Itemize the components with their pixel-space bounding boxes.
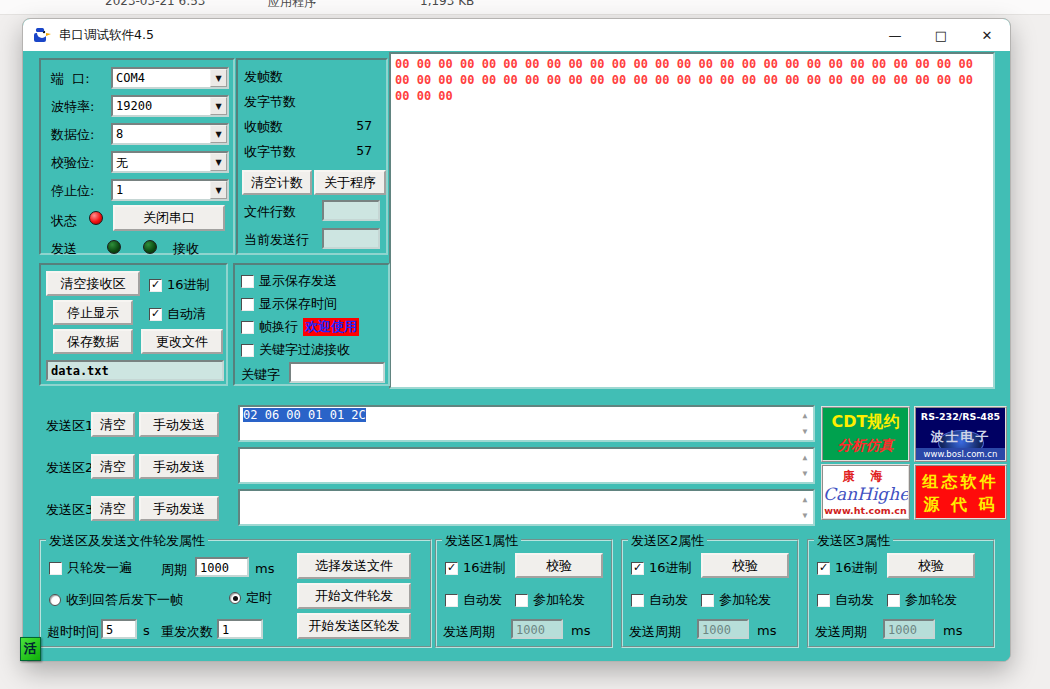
area2-autosend-label: 自动发 — [649, 591, 688, 609]
window-title: 串口调试软件4.5 — [59, 27, 154, 44]
app-window: 串口调试软件4.5 — □ ✕ 端 口: COM4▼ 波特率: 19200▼ 数… — [22, 18, 1011, 662]
area3-verify-button[interactable]: 校验 — [887, 553, 975, 578]
period-unit: ms — [255, 561, 274, 576]
area2-hex-checkbox[interactable]: 16进制 — [631, 559, 692, 577]
send-area2-props-title: 发送区2属性 — [628, 532, 707, 550]
timer-mode-radio[interactable]: 定时 — [229, 589, 272, 607]
port-settings-panel: 端 口: COM4▼ 波特率: 19200▼ 数据位: 8▼ 校验位: 无▼ 停… — [39, 58, 235, 255]
databits-label: 数据位: — [51, 126, 94, 144]
rx-frames-value: 57 — [356, 118, 372, 133]
send-area2-manual-button[interactable]: 手动发送 — [139, 454, 219, 479]
area2-period-field: 1000 — [697, 619, 749, 639]
send-area3-props-title: 发送区3属性 — [814, 532, 893, 550]
rx-led-icon — [143, 240, 157, 254]
current-line-field[interactable] — [322, 228, 380, 249]
area1-autosend-checkbox[interactable]: 自动发 — [445, 591, 502, 609]
send-after-answer-radio[interactable]: 收到回答后发下一帧 — [49, 591, 183, 609]
stopbits-label: 停止位: — [51, 182, 94, 200]
checkbox-icon — [515, 594, 528, 607]
autoclear-checkbox[interactable]: 自动清 — [149, 305, 206, 323]
area3-period-field: 1000 — [883, 619, 935, 639]
rx-line: 00 00 00 00 00 00 00 00 00 00 00 00 00 0… — [395, 56, 989, 72]
parity-value: 无 — [113, 153, 210, 171]
send-area1-field[interactable]: 02 06 00 01 01 2C▲▼ — [238, 405, 815, 442]
spinner-arrows-icon[interactable]: ▲▼ — [798, 408, 812, 439]
rotate-once-checkbox[interactable]: 只轮发一遍 — [49, 559, 132, 577]
current-line-label: 当前发送行 — [244, 231, 309, 249]
send-area2-props-group: 发送区2属性 16进制 校验 自动发 参加轮发 发送周期 1000 ms — [621, 539, 799, 648]
welcome-badge: 欢迎使用 — [303, 318, 359, 336]
send-area3-props-group: 发送区3属性 16进制 校验 自动发 参加轮发 发送周期 1000 ms — [807, 539, 995, 648]
retry-field[interactable]: 1 — [217, 619, 263, 639]
checkbox-icon — [241, 298, 254, 311]
send-area2-clear-button[interactable]: 清空 — [91, 454, 135, 479]
databits-select[interactable]: 8▼ — [111, 123, 229, 145]
area3-autosend-label: 自动发 — [835, 591, 874, 609]
send-area1-clear-button[interactable]: 清空 — [91, 412, 135, 437]
checkbox-icon — [817, 594, 830, 607]
timeout-label: 超时时间 — [47, 623, 99, 641]
area1-autosend-label: 自动发 — [463, 591, 502, 609]
canhigher-ad[interactable]: 康 海 CanHigher www.ht.com.cn — [821, 464, 910, 520]
background-explorer-row: 2023-03-21 6:53 应用程序 1,193 KB — [0, 0, 1050, 15]
chevron-down-icon[interactable]: ▼ — [210, 69, 227, 87]
save-data-button[interactable]: 保存数据 — [53, 329, 133, 354]
maximize-button[interactable]: □ — [918, 19, 964, 51]
area3-join-checkbox[interactable]: 参加轮发 — [887, 591, 957, 609]
chevron-down-icon[interactable]: ▼ — [210, 153, 227, 171]
cdt-ad-line2: 分析仿真 — [823, 437, 908, 455]
area1-hex-label: 16进制 — [463, 559, 506, 577]
send-area3-label: 发送区3 — [46, 501, 93, 519]
retry-label: 重发次数 — [161, 623, 213, 641]
autoclear-label: 自动清 — [167, 305, 206, 323]
tx-frames-label: 发帧数 — [244, 68, 283, 86]
about-button[interactable]: 关于程序 — [314, 170, 386, 195]
clear-count-button[interactable]: 清空计数 — [242, 170, 312, 195]
send-area2-field[interactable]: ▲▼ — [238, 447, 815, 484]
tx-label: 发送 — [51, 240, 77, 258]
title-bar[interactable]: 串口调试软件4.5 — □ ✕ — [23, 19, 1010, 51]
area1-period-field: 1000 — [511, 619, 563, 639]
area2-join-checkbox[interactable]: 参加轮发 — [701, 591, 771, 609]
bosi-ad-line2: 波士电子 — [916, 428, 1005, 446]
send-area3-manual-button[interactable]: 手动发送 — [139, 496, 219, 521]
keyword-filter-label: 关键字过滤接收 — [259, 341, 350, 359]
rotate-once-label: 只轮发一遍 — [67, 559, 132, 577]
chevron-down-icon[interactable]: ▼ — [210, 97, 227, 115]
scada-ad-line1: 组态软件 — [916, 472, 1005, 493]
area1-verify-button[interactable]: 校验 — [515, 553, 603, 578]
cdt-protocol-ad[interactable]: CDT规约 分析仿真 — [821, 406, 910, 462]
area1-period-unit: ms — [571, 623, 590, 638]
bosi-electronics-ad[interactable]: RS-232/RS-485 波士电子 www.bosl.com.cn — [914, 406, 1007, 462]
checkbox-icon — [149, 308, 162, 321]
databits-value: 8 — [113, 125, 210, 143]
show-saved-time-label: 显示保存时间 — [259, 295, 337, 313]
checkbox-icon — [241, 344, 254, 357]
status-label: 状态 — [51, 212, 77, 230]
send-area1-props-title: 发送区1属性 — [442, 532, 521, 550]
checkbox-icon — [817, 562, 830, 575]
checkbox-icon — [241, 321, 254, 334]
canhigher-ad-line2: CanHigher — [823, 484, 908, 504]
keyword-field[interactable] — [289, 362, 385, 383]
area1-hex-checkbox[interactable]: 16进制 — [445, 559, 506, 577]
checkbox-icon — [241, 275, 254, 288]
period-field[interactable]: 1000 — [195, 557, 249, 577]
save-filename-field[interactable]: data.txt — [46, 360, 224, 381]
area1-join-checkbox[interactable]: 参加轮发 — [515, 591, 585, 609]
canhigher-ad-url: www.ht.com.cn — [823, 505, 908, 516]
stopbits-value: 1 — [113, 181, 210, 199]
keyword-label: 关键字 — [241, 366, 280, 384]
tx-bytes-label: 发字节数 — [244, 93, 296, 111]
file-date: 2023-03-21 6:53 — [105, 0, 206, 8]
area3-hex-checkbox[interactable]: 16进制 — [817, 559, 878, 577]
app-duck-icon — [33, 27, 51, 43]
area2-period-label: 发送周期 — [629, 623, 681, 641]
stop-display-button[interactable]: 停止显示 — [53, 300, 133, 325]
checkbox-icon — [445, 562, 458, 575]
rotation-settings-group: 发送区及发送文件轮发属性 只轮发一遍 周期 1000 ms 选择发送文件 收到回… — [39, 539, 432, 648]
clear-receive-button[interactable]: 清空接收区 — [46, 271, 140, 296]
port-value: COM4 — [113, 69, 210, 87]
radio-icon — [49, 594, 61, 606]
hex-display-label: 16进制 — [167, 276, 210, 294]
rx-bytes-value: 57 — [356, 143, 372, 158]
client-area: 端 口: COM4▼ 波特率: 19200▼ 数据位: 8▼ 校验位: 无▼ 停… — [23, 51, 1010, 661]
checkbox-icon — [631, 562, 644, 575]
spinner-arrows-icon[interactable]: ▲▼ — [798, 450, 812, 481]
file-lines-label: 文件行数 — [244, 203, 296, 221]
scada-source-ad[interactable]: 组态软件 源 代 码 — [914, 464, 1007, 520]
change-file-button[interactable]: 更改文件 — [141, 329, 223, 354]
area2-period-unit: ms — [757, 623, 776, 638]
baud-select[interactable]: 19200▼ — [111, 95, 229, 117]
area1-join-label: 参加轮发 — [533, 591, 585, 609]
area2-hex-label: 16进制 — [649, 559, 692, 577]
minimize-button[interactable]: — — [872, 19, 918, 51]
file-size: 1,193 KB — [420, 0, 474, 8]
rx-label: 接收 — [173, 240, 199, 258]
selected-hex-text: 02 06 00 01 01 2C — [243, 408, 366, 422]
parity-label: 校验位: — [51, 154, 94, 172]
send-area3-field[interactable]: ▲▼ — [238, 489, 815, 526]
show-saved-time-checkbox[interactable]: 显示保存时间 — [241, 295, 337, 313]
counters-panel: 发帧数 发字节数 收帧数 57 收字节数 57 清空计数 关于程序 文件行数 当… — [236, 58, 388, 255]
rx-line: 00 00 00 — [395, 88, 989, 104]
checkbox-icon — [631, 594, 644, 607]
close-port-button[interactable]: 关闭串口 — [113, 205, 225, 231]
rx-bytes-label: 收字节数 — [244, 143, 296, 161]
rx-frames-label: 收帧数 — [244, 118, 283, 136]
rx-line: 00 00 00 00 00 00 00 00 00 00 00 00 00 0… — [395, 72, 989, 88]
hex-display-checkbox[interactable]: 16进制 — [149, 276, 210, 294]
frame-newline-label: 帧换行 — [259, 318, 298, 336]
area1-period-label: 发送周期 — [443, 623, 495, 641]
rotation-group-title: 发送区及发送文件轮发属性 — [46, 532, 208, 550]
bosi-ad-url: www.bosl.com.cn — [916, 448, 1005, 460]
chevron-down-icon[interactable]: ▼ — [210, 125, 227, 143]
timeout-field[interactable]: 5 — [101, 619, 137, 639]
ime-indicator[interactable]: 活 — [20, 637, 41, 661]
checkbox-icon — [701, 594, 714, 607]
start-area-rotation-button[interactable]: 开始发送区轮发 — [297, 613, 411, 639]
send-area3-clear-button[interactable]: 清空 — [91, 496, 135, 521]
baud-label: 波特率: — [51, 98, 94, 116]
area3-period-unit: ms — [943, 623, 962, 638]
select-send-file-button[interactable]: 选择发送文件 — [297, 553, 411, 579]
start-file-rotation-button[interactable]: 开始文件轮发 — [297, 583, 411, 609]
show-saved-tx-checkbox[interactable]: 显示保存发送 — [241, 272, 337, 290]
cdt-ad-line1: CDT规约 — [823, 412, 908, 433]
baud-value: 19200 — [113, 97, 210, 115]
parity-select[interactable]: 无▼ — [111, 151, 229, 173]
send-area2-label: 发送区2 — [46, 459, 93, 477]
file-type: 应用程序 — [268, 0, 316, 11]
timeout-unit: s — [143, 623, 150, 638]
period-label: 周期 — [161, 561, 187, 579]
scada-ad-line2: 源 代 码 — [916, 495, 1005, 516]
chevron-down-icon[interactable]: ▼ — [210, 181, 227, 199]
file-lines-field[interactable] — [322, 200, 380, 221]
area2-autosend-checkbox[interactable]: 自动发 — [631, 591, 688, 609]
radio-icon — [229, 592, 241, 604]
tx-led-icon — [107, 240, 121, 254]
bosi-ad-line1: RS-232/RS-485 — [916, 411, 1005, 422]
show-saved-tx-label: 显示保存发送 — [259, 272, 337, 290]
checkbox-icon — [149, 279, 162, 292]
port-label: 端 口: — [51, 70, 90, 88]
checkbox-icon — [887, 594, 900, 607]
receive-data-area[interactable]: 00 00 00 00 00 00 00 00 00 00 00 00 00 0… — [389, 52, 995, 389]
frame-newline-checkbox[interactable]: 帧换行欢迎使用 — [241, 318, 359, 336]
checkbox-icon — [445, 594, 458, 607]
port-select[interactable]: COM4▼ — [111, 67, 229, 89]
keyword-filter-checkbox[interactable]: 关键字过滤接收 — [241, 341, 350, 359]
checkbox-icon — [49, 562, 62, 575]
close-button[interactable]: ✕ — [964, 19, 1010, 51]
receive-controls-panel: 清空接收区 16进制 停止显示 自动清 保存数据 更改文件 data.txt — [39, 263, 228, 386]
status-led-icon — [89, 211, 103, 225]
area3-join-label: 参加轮发 — [905, 591, 957, 609]
send-area1-manual-button[interactable]: 手动发送 — [139, 412, 219, 437]
canhigher-ad-line1: 康 海 — [823, 468, 908, 485]
area2-verify-button[interactable]: 校验 — [701, 553, 789, 578]
area3-hex-label: 16进制 — [835, 559, 878, 577]
timer-mode-label: 定时 — [246, 589, 272, 607]
area2-join-label: 参加轮发 — [719, 591, 771, 609]
send-after-answer-label: 收到回答后发下一帧 — [66, 591, 183, 609]
send-area1-props-group: 发送区1属性 16进制 校验 自动发 参加轮发 发送周期 1000 ms — [435, 539, 613, 648]
area3-period-label: 发送周期 — [815, 623, 867, 641]
display-options-panel: 显示保存发送 显示保存时间 帧换行欢迎使用 关键字过滤接收 关键字 — [233, 263, 390, 386]
spinner-arrows-icon[interactable]: ▲▼ — [798, 492, 812, 523]
stopbits-select[interactable]: 1▼ — [111, 179, 229, 201]
send-area1-label: 发送区1 — [46, 417, 93, 435]
area3-autosend-checkbox[interactable]: 自动发 — [817, 591, 874, 609]
